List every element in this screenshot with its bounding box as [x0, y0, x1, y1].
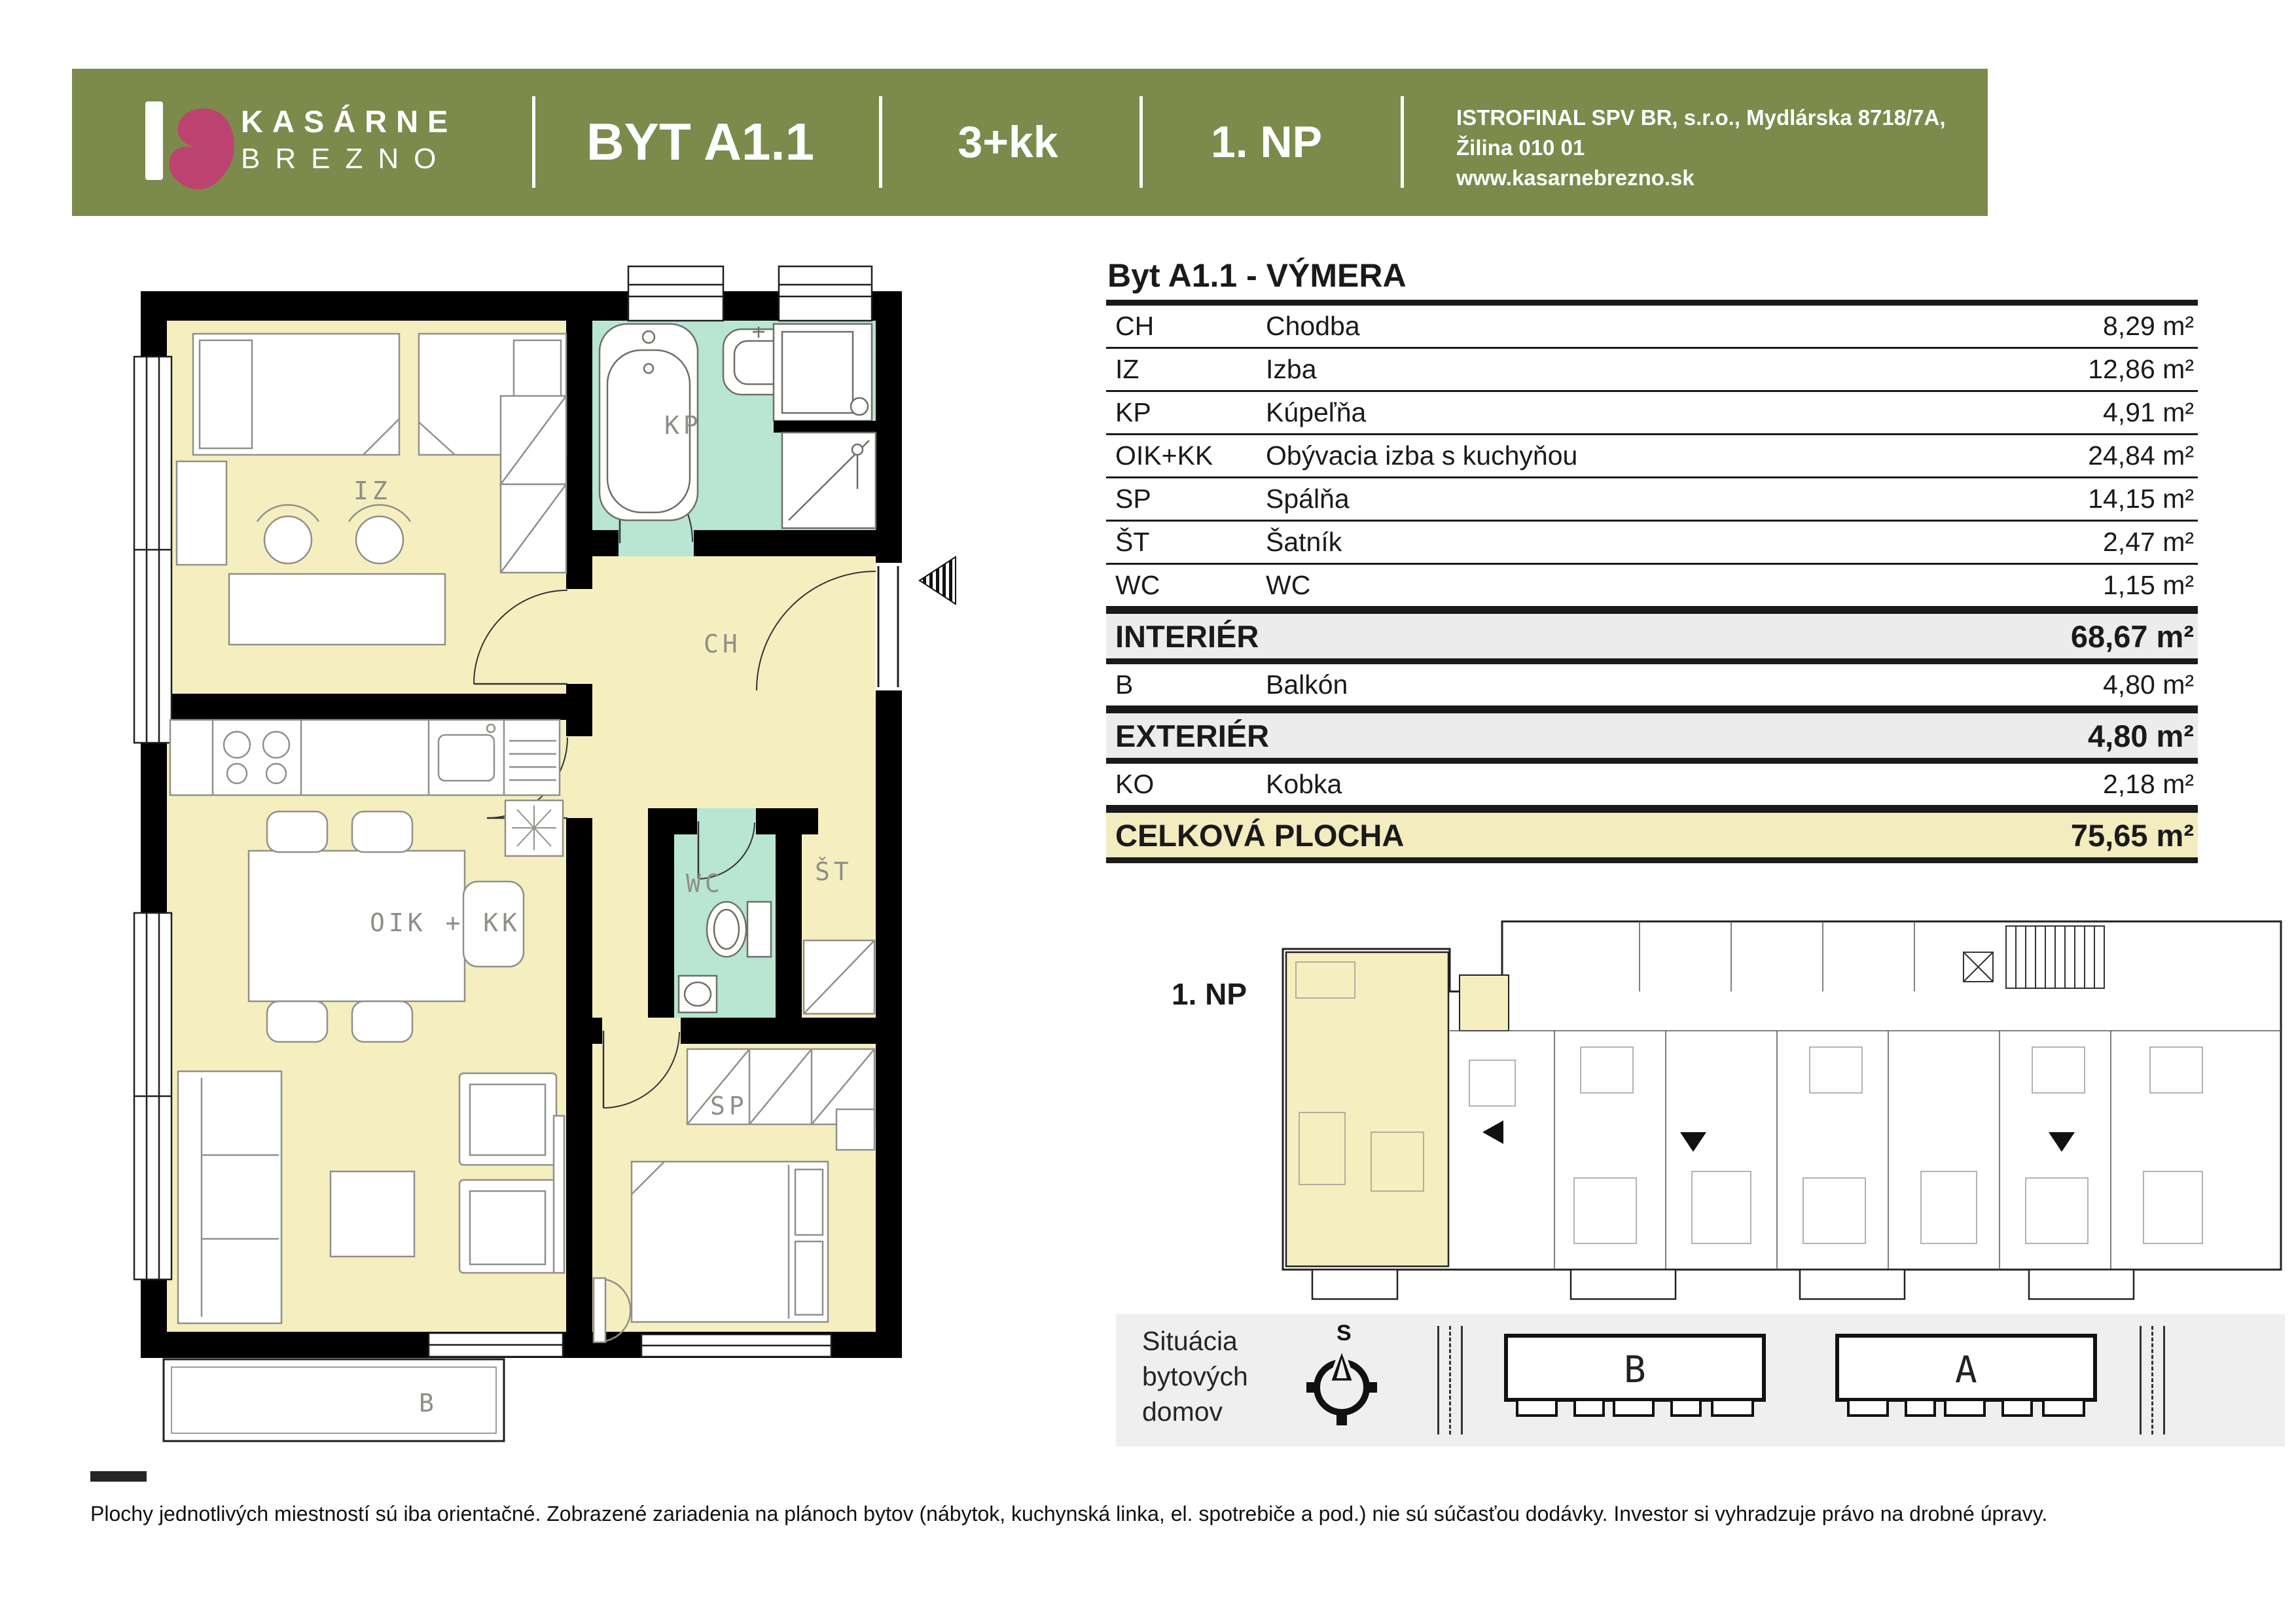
room-area: 2,47 m² [2103, 527, 2198, 558]
header-bar: KASÁRNE BREZNO BYT A1.1 3+kk 1. NP ISTRO… [72, 69, 1988, 216]
room-name: Balkón [1266, 669, 2103, 700]
header-divider [1139, 96, 1143, 188]
room-code: OIK+KK [1106, 440, 1266, 471]
room-area: 4,91 m² [2103, 397, 2198, 428]
table-row: KO Kobka 2,18 m² [1106, 764, 2198, 807]
room-area: 4,80 m² [2103, 669, 2198, 700]
interior-label: INTERIÉR [1115, 618, 1259, 654]
road-line [2140, 1326, 2142, 1435]
tv-icon [554, 1116, 564, 1273]
entry-door [876, 563, 916, 690]
room-label-oik: OIK + KK [370, 908, 521, 937]
chair-icon [356, 516, 403, 563]
building-a-outline: A [1834, 1332, 2098, 1437]
coffee-table-icon [331, 1171, 414, 1257]
mini-plan-floor-label: 1. NP [1172, 976, 1247, 1012]
room-code: B [1106, 669, 1266, 700]
room-ch [592, 556, 876, 808]
building-b-outline: B [1503, 1332, 1767, 1437]
room-name: Obývacia izba s kuchyňou [1266, 440, 2088, 471]
brand-name-line2: BREZNO [241, 141, 457, 177]
room-area: 24,84 m² [2088, 440, 2198, 471]
road-line-dashed [1449, 1326, 1451, 1435]
nightstand-icon [836, 1109, 874, 1150]
room-name: Kúpeľňa [1266, 397, 2103, 428]
hob-icon [224, 732, 250, 758]
table-row: IZ Izba 12,86 m² [1106, 349, 2198, 392]
room-name: Chodba [1266, 311, 2103, 342]
area-table-title: Byt A1.1 - VÝMERA [1106, 257, 2198, 300]
compass-icon: S [1302, 1322, 1381, 1438]
logo-bar [145, 101, 163, 180]
company-website: www.kasarnebrezno.sk [1456, 163, 1988, 193]
total-label: CELKOVÁ PLOCHA [1115, 817, 1404, 853]
mini-floor-plan [1273, 916, 2291, 1309]
entry-arrow-icon [920, 557, 956, 604]
company-address: ISTROFINAL SPV BR, s.r.o., Mydlárska 871… [1456, 103, 1988, 163]
room-label-iz: IZ [353, 476, 391, 505]
room-code: KP [1106, 397, 1266, 428]
exterior-area: 4,80 m² [2088, 718, 2194, 754]
road-line [1461, 1326, 1463, 1435]
table-row: WC WC 1,15 m² [1106, 565, 2198, 608]
logo-heart-icon [164, 103, 243, 197]
room-code: SP [1106, 484, 1266, 514]
apartment-id: BYT A1.1 [560, 103, 841, 181]
table-row: CH Chodba 8,29 m² [1106, 306, 2198, 349]
room-name: Spálňa [1266, 484, 2088, 514]
room-name: Šatník [1266, 527, 2103, 558]
situation-title: Situácia bytových domov [1142, 1323, 1248, 1429]
room-code: CH [1106, 311, 1266, 342]
room-label-ch: CH [704, 630, 742, 658]
road-line [1437, 1326, 1439, 1435]
highlighted-kobka [1460, 975, 1509, 1031]
room-area: 1,15 m² [2103, 570, 2198, 601]
room-name: Izba [1266, 354, 2088, 385]
balcony [164, 1359, 504, 1441]
mini-balconies [1312, 1270, 2134, 1299]
exterior-summary-row: EXTERIÉR 4,80 m² [1106, 707, 2198, 764]
floor-number: 1. NP [1165, 103, 1368, 181]
sink-icon [439, 735, 494, 781]
window-top-2 [779, 266, 872, 321]
st-strip [818, 808, 876, 834]
table-row: B Balkón 4,80 m² [1106, 664, 2198, 707]
header-divider [532, 96, 535, 188]
chair-icon [352, 1001, 412, 1042]
room-label-wc: WC [686, 869, 724, 898]
chair-icon [267, 811, 327, 852]
road-line [2163, 1326, 2165, 1435]
disclaimer-text: Plochy jednotlivých miestností sú iba or… [90, 1502, 2276, 1526]
room-label-sp: SP [710, 1092, 748, 1120]
room-code: ŠT [1106, 527, 1266, 558]
compass-north-label: S [1336, 1322, 1352, 1346]
exterior-label: EXTERIÉR [1115, 718, 1269, 754]
table-row: KP Kúpeľňa 4,91 m² [1106, 392, 2198, 435]
header-divider [1401, 96, 1404, 188]
brand-name-line1: KASÁRNE [241, 103, 457, 141]
sofa-icon [178, 1071, 281, 1323]
building-b-label: B [1624, 1349, 1646, 1391]
room-label-b: B [419, 1389, 438, 1418]
floor-plan: IZ KP CH WC ŠT OIK + KK SP B [72, 259, 1096, 1466]
situation-panel: Situácia bytových domov S B [1116, 1314, 2285, 1446]
building-a-label: A [1955, 1349, 1977, 1391]
room-code: IZ [1106, 354, 1266, 385]
room-area: 2,18 m² [2103, 769, 2198, 800]
room-label-st: ŠT [815, 857, 853, 886]
desk-icon [229, 574, 445, 645]
road-line-dashed [2151, 1326, 2153, 1435]
table-row: OIK+KK Obývacia izba s kuchyňou 24,84 m² [1106, 435, 2198, 478]
room-label-kp: KP [664, 411, 702, 440]
kitchen-counter [170, 720, 560, 795]
chair-icon [264, 516, 312, 563]
room-code: KO [1106, 769, 1266, 800]
situation-line2: bytových [1142, 1359, 1248, 1394]
company-info: ISTROFINAL SPV BR, s.r.o., Mydlárska 871… [1456, 103, 1988, 193]
room-name: WC [1266, 570, 2103, 601]
footer-divider [90, 1471, 147, 1482]
total-area: 75,65 m² [2071, 817, 2194, 853]
highlighted-unit [1286, 952, 1448, 1266]
cabinet-icon [177, 461, 226, 565]
area-table-body: CH Chodba 8,29 m² IZ Izba 12,86 m² KP Kú… [1106, 300, 2198, 863]
area-table: Byt A1.1 - VÝMERA CH Chodba 8,29 m² IZ I… [1106, 257, 2198, 863]
situation-line1: Situácia [1142, 1323, 1248, 1359]
crib-icon [594, 1278, 605, 1342]
room-area: 8,29 m² [2103, 311, 2198, 342]
header-divider [879, 96, 882, 188]
brand-text: KASÁRNE BREZNO [241, 103, 457, 177]
interior-summary-row: INTERIÉR 68,67 m² [1106, 608, 2198, 664]
layout-type: 3+kk [903, 103, 1113, 181]
room-code: WC [1106, 570, 1266, 601]
total-area-row: CELKOVÁ PLOCHA 75,65 m² [1106, 807, 2198, 863]
chair-icon [352, 811, 412, 852]
hall-strip [592, 808, 648, 1018]
room-area: 12,86 m² [2088, 354, 2198, 385]
situation-line3: domov [1142, 1394, 1248, 1429]
room-name: Kobka [1266, 769, 2103, 800]
room-area: 14,15 m² [2088, 484, 2198, 514]
table-row: SP Spálňa 14,15 m² [1106, 478, 2198, 522]
flyer-page: KASÁRNE BREZNO BYT A1.1 3+kk 1. NP ISTRO… [0, 0, 2296, 1623]
window-top-1 [628, 266, 723, 321]
interior-area: 68,67 m² [2071, 618, 2194, 654]
table-row: ŠT Šatník 2,47 m² [1106, 522, 2198, 565]
chair-icon [267, 1001, 327, 1042]
